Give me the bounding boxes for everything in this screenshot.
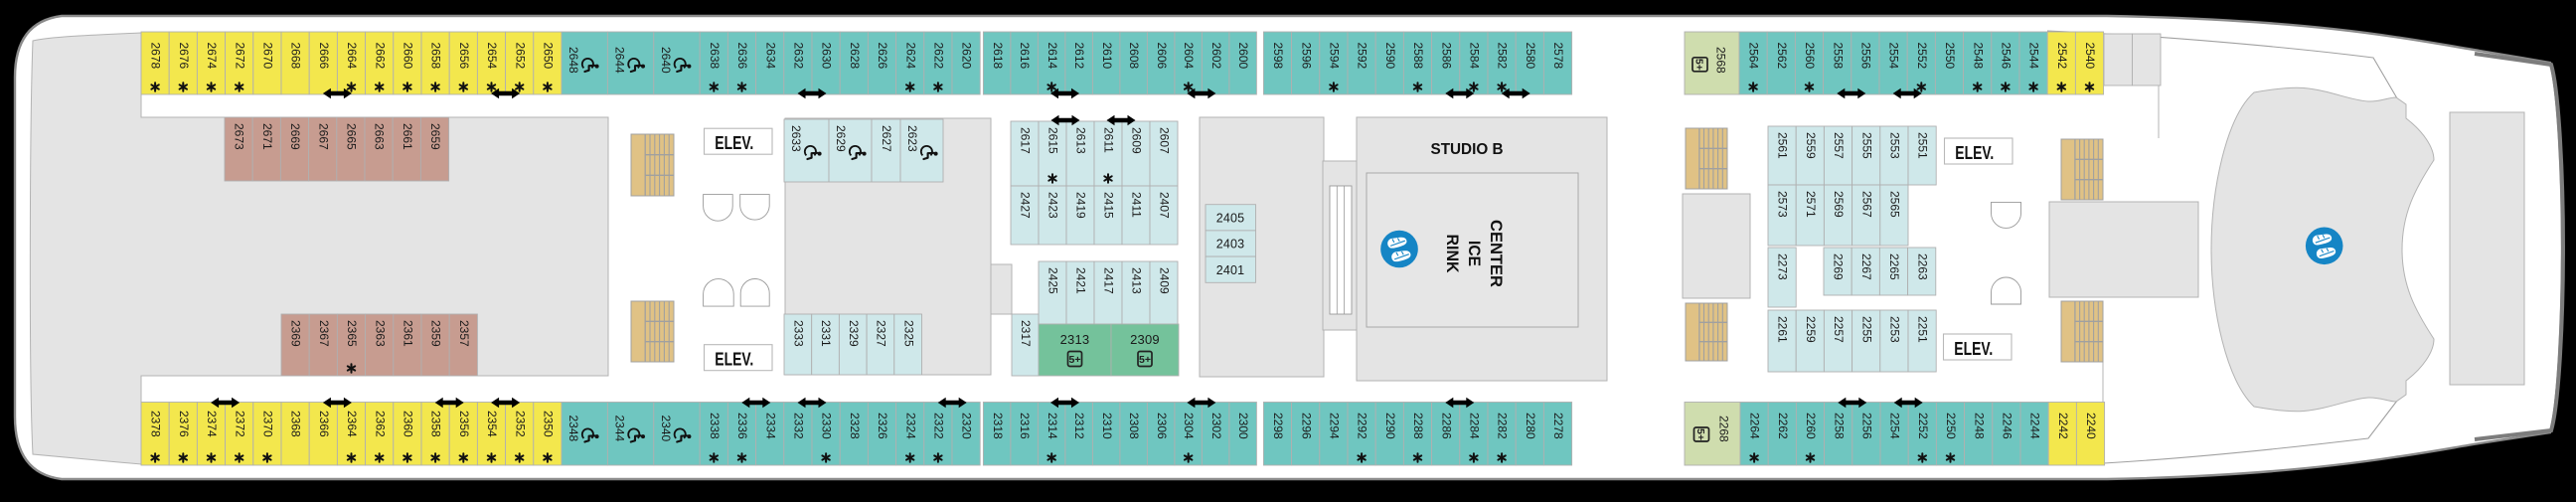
svg-text:2259: 2259 [1804,316,1818,343]
svg-text:2611: 2611 [1102,127,1116,153]
svg-text:2344: 2344 [613,416,627,442]
svg-text:2427: 2427 [1019,192,1033,219]
svg-text:2417: 2417 [1102,267,1116,294]
svg-text:2240: 2240 [2084,413,2098,439]
svg-text:2552: 2552 [1915,43,1929,70]
svg-text:2253: 2253 [1888,316,1902,343]
svg-text:2364: 2364 [345,411,359,437]
svg-text:2678: 2678 [149,43,163,70]
svg-text:2586: 2586 [1439,43,1453,70]
svg-text:2326: 2326 [876,413,889,439]
svg-text:2376: 2376 [177,411,191,437]
svg-text:2331: 2331 [819,320,833,347]
svg-text:2260: 2260 [1804,413,1818,439]
svg-text:2415: 2415 [1102,192,1116,219]
svg-text:2676: 2676 [177,43,191,70]
svg-text:2258: 2258 [1832,413,1846,439]
svg-text:2671: 2671 [260,123,274,150]
svg-text:2623: 2623 [905,125,919,152]
svg-text:2618: 2618 [991,43,1005,70]
svg-text:2553: 2553 [1888,132,1902,159]
svg-text:ELEV.: ELEV. [1954,339,1993,359]
svg-text:2348: 2348 [566,416,580,442]
svg-text:2580: 2580 [1524,43,1537,70]
svg-text:2561: 2561 [1776,132,1790,159]
svg-text:2610: 2610 [1100,43,1114,70]
svg-text:2273: 2273 [1776,253,1790,280]
svg-text:2403: 2403 [1216,238,1245,251]
svg-text:2330: 2330 [820,413,834,439]
svg-text:2590: 2590 [1383,43,1397,70]
svg-text:2413: 2413 [1130,267,1144,294]
svg-text:2411: 2411 [1130,192,1144,218]
svg-text:2620: 2620 [960,43,974,70]
svg-text:2309: 2309 [1130,332,1160,347]
svg-text:2606: 2606 [1155,43,1169,70]
svg-text:2261: 2261 [1776,316,1790,343]
svg-text:2565: 2565 [1888,191,1902,218]
svg-text:2332: 2332 [792,413,806,439]
svg-text:2650: 2650 [542,43,556,70]
svg-text:2370: 2370 [261,411,275,437]
svg-text:2654: 2654 [485,43,499,70]
svg-text:2267: 2267 [1859,253,1873,280]
svg-text:2292: 2292 [1356,413,1369,439]
svg-text:2280: 2280 [1524,413,1537,439]
svg-text:2316: 2316 [1018,413,1032,439]
svg-text:2544: 2544 [2027,43,2041,70]
svg-text:2667: 2667 [316,123,330,150]
svg-text:2328: 2328 [848,413,862,439]
svg-text:2602: 2602 [1209,43,1223,70]
svg-text:2248: 2248 [1972,413,1986,439]
svg-text:2354: 2354 [485,411,499,437]
svg-text:2369: 2369 [289,320,303,347]
svg-text:2562: 2562 [1775,43,1789,70]
svg-text:2666: 2666 [317,43,331,70]
svg-text:2368: 2368 [289,411,303,437]
svg-text:2284: 2284 [1468,413,1482,439]
svg-text:2608: 2608 [1127,43,1141,70]
svg-text:2540: 2540 [2083,43,2097,70]
svg-text:2664: 2664 [345,43,359,70]
svg-text:2378: 2378 [149,411,163,437]
svg-text:2251: 2251 [1916,316,1930,343]
svg-text:2660: 2660 [402,43,415,70]
svg-text:2365: 2365 [345,320,359,347]
svg-text:2324: 2324 [903,413,917,439]
svg-text:2360: 2360 [402,411,415,437]
svg-text:2425: 2425 [1046,267,1060,294]
svg-text:ELEV.: ELEV. [1955,143,1994,163]
svg-text:2663: 2663 [373,123,387,150]
svg-text:2604: 2604 [1182,43,1196,70]
svg-text:2668: 2668 [289,43,303,70]
svg-text:2624: 2624 [903,43,917,70]
svg-text:2401: 2401 [1216,263,1245,277]
svg-text:2329: 2329 [847,320,861,347]
svg-text:2356: 2356 [457,411,471,437]
svg-text:2314: 2314 [1046,413,1059,439]
svg-text:2555: 2555 [1859,132,1873,159]
svg-text:2262: 2262 [1776,413,1790,439]
svg-text:2366: 2366 [317,411,331,437]
svg-text:2617: 2617 [1019,127,1033,154]
svg-text:CENTER: CENTER [1487,220,1506,287]
svg-text:2542: 2542 [2055,43,2069,70]
svg-text:2609: 2609 [1130,127,1144,154]
svg-text:2612: 2612 [1072,43,1086,70]
svg-text:2630: 2630 [820,43,834,70]
svg-text:2367: 2367 [317,320,331,347]
svg-text:2628: 2628 [848,43,862,70]
svg-text:2582: 2582 [1496,43,1510,70]
svg-text:2338: 2338 [708,413,722,439]
svg-text:2616: 2616 [1018,43,1032,70]
svg-text:2573: 2573 [1776,191,1790,218]
svg-text:2419: 2419 [1074,192,1088,219]
svg-text:2405: 2405 [1216,212,1245,226]
svg-text:2554: 2554 [1887,43,1901,70]
svg-text:2659: 2659 [428,123,442,150]
svg-text:2648: 2648 [566,47,580,74]
svg-text:2656: 2656 [457,43,471,70]
svg-text:2569: 2569 [1832,191,1846,218]
svg-text:2662: 2662 [373,43,387,70]
svg-text:2598: 2598 [1271,43,1285,70]
svg-text:2632: 2632 [792,43,806,70]
svg-text:2246: 2246 [2001,413,2014,439]
svg-text:2312: 2312 [1072,413,1086,439]
svg-text:5+: 5+ [1069,354,1081,366]
svg-text:2359: 2359 [429,320,443,347]
svg-text:2372: 2372 [233,411,246,437]
svg-text:2352: 2352 [513,411,527,437]
svg-text:2298: 2298 [1271,413,1285,439]
svg-text:2317: 2317 [1019,320,1033,347]
svg-text:2242: 2242 [2056,413,2070,439]
svg-text:2327: 2327 [875,320,888,347]
svg-text:5+: 5+ [1139,354,1151,366]
svg-text:2294: 2294 [1328,413,1342,439]
svg-text:2596: 2596 [1299,43,1313,70]
svg-text:2350: 2350 [542,411,556,437]
svg-text:2320: 2320 [960,413,974,439]
svg-text:2626: 2626 [876,43,889,70]
svg-text:2336: 2336 [735,413,749,439]
svg-text:2340: 2340 [659,416,673,442]
svg-text:2669: 2669 [288,123,302,150]
svg-text:2665: 2665 [345,123,359,150]
svg-text:2278: 2278 [1551,413,1565,439]
svg-text:2652: 2652 [513,43,527,70]
svg-text:2629: 2629 [834,125,848,152]
svg-text:2334: 2334 [763,413,777,439]
svg-text:2550: 2550 [1943,43,1957,70]
svg-text:2661: 2661 [401,123,414,150]
svg-text:2658: 2658 [429,43,443,70]
svg-text:2633: 2633 [789,125,803,152]
svg-text:2568: 2568 [1714,47,1728,74]
svg-text:2560: 2560 [1803,43,1817,70]
svg-text:ELEV.: ELEV. [715,133,753,153]
svg-text:2357: 2357 [457,320,471,347]
svg-text:2361: 2361 [402,320,415,347]
svg-text:2636: 2636 [735,43,749,70]
svg-text:ICE: ICE [1465,241,1484,266]
svg-text:2363: 2363 [373,320,387,347]
svg-text:2558: 2558 [1831,43,1845,70]
svg-text:2407: 2407 [1158,192,1172,219]
svg-text:2250: 2250 [1944,413,1958,439]
svg-text:2264: 2264 [1748,413,1762,439]
svg-text:2640: 2640 [659,47,673,74]
svg-text:5+: 5+ [1694,428,1706,440]
svg-text:2409: 2409 [1158,267,1172,294]
svg-text:2254: 2254 [1888,413,1902,439]
svg-text:2613: 2613 [1074,127,1088,154]
svg-text:2421: 2421 [1074,267,1088,294]
svg-text:2638: 2638 [708,43,722,70]
svg-text:2265: 2265 [1887,253,1901,280]
svg-text:2584: 2584 [1468,43,1482,70]
svg-text:2325: 2325 [901,320,915,347]
svg-text:2302: 2302 [1209,413,1223,439]
svg-text:2627: 2627 [880,125,893,152]
svg-text:2634: 2634 [763,43,777,70]
svg-text:2672: 2672 [233,43,246,70]
svg-text:2358: 2358 [429,411,443,437]
svg-text:2423: 2423 [1046,192,1060,219]
svg-text:2546: 2546 [2000,43,2013,70]
svg-text:2362: 2362 [373,411,387,437]
svg-text:2559: 2559 [1804,132,1818,159]
svg-text:2286: 2286 [1439,413,1453,439]
svg-text:2269: 2269 [1832,253,1846,280]
svg-text:2304: 2304 [1182,413,1196,439]
svg-text:2588: 2588 [1411,43,1425,70]
svg-text:2333: 2333 [792,320,806,347]
svg-text:2644: 2644 [613,47,627,74]
svg-text:2578: 2578 [1551,43,1565,70]
svg-text:2615: 2615 [1046,127,1060,154]
svg-text:2296: 2296 [1299,413,1313,439]
svg-text:2290: 2290 [1383,413,1397,439]
svg-text:2614: 2614 [1046,43,1059,70]
svg-text:2282: 2282 [1496,413,1510,439]
svg-text:2244: 2244 [2028,413,2042,439]
svg-text:2374: 2374 [205,411,219,437]
svg-text:2257: 2257 [1832,316,1846,343]
svg-text:2556: 2556 [1859,43,1873,70]
svg-text:2313: 2313 [1060,332,1090,347]
svg-text:2256: 2256 [1860,413,1874,439]
svg-text:2318: 2318 [991,413,1005,439]
svg-text:2268: 2268 [1717,416,1731,442]
svg-text:2255: 2255 [1859,316,1873,343]
svg-text:2594: 2594 [1328,43,1342,70]
svg-text:2567: 2567 [1859,191,1873,218]
svg-text:2548: 2548 [1971,43,1985,70]
svg-text:2288: 2288 [1411,413,1425,439]
svg-text:2600: 2600 [1236,43,1250,70]
svg-text:2674: 2674 [205,43,219,70]
svg-text:2263: 2263 [1915,253,1929,280]
svg-text:ELEV.: ELEV. [715,350,753,370]
svg-text:2622: 2622 [932,43,946,70]
svg-text:2557: 2557 [1832,132,1846,159]
svg-text:STUDIO B: STUDIO B [1431,141,1504,158]
svg-text:2310: 2310 [1100,413,1114,439]
svg-text:RINK: RINK [1443,235,1462,274]
svg-text:2607: 2607 [1158,127,1172,154]
svg-text:2300: 2300 [1236,413,1250,439]
svg-text:2670: 2670 [261,43,275,70]
svg-text:2564: 2564 [1747,43,1761,70]
svg-text:2252: 2252 [1916,413,1930,439]
svg-text:2306: 2306 [1155,413,1169,439]
svg-text:2322: 2322 [932,413,946,439]
svg-text:2673: 2673 [233,123,246,150]
svg-text:2592: 2592 [1356,43,1369,70]
svg-text:2551: 2551 [1916,132,1930,159]
svg-text:5+: 5+ [1692,59,1704,71]
svg-text:2571: 2571 [1804,191,1818,218]
svg-text:2308: 2308 [1127,413,1141,439]
